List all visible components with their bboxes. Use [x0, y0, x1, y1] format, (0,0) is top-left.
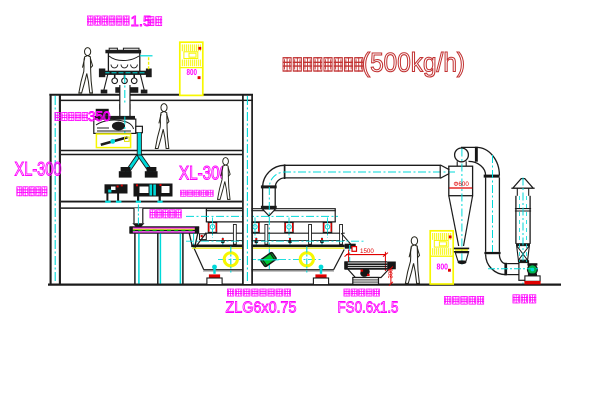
- svg-text:800: 800: [437, 261, 449, 271]
- svg-text:FS0.6x1.5: FS0.6x1.5: [338, 300, 399, 317]
- svg-text:XL-300: XL-300: [15, 160, 62, 181]
- svg-text:XL-300: XL-300: [179, 164, 228, 185]
- svg-text:300: 300: [389, 268, 395, 279]
- svg-text:ZLG6x0.75: ZLG6x0.75: [226, 300, 297, 317]
- svg-text:Φ600: Φ600: [454, 181, 470, 188]
- svg-text:(500kg/h): (500kg/h): [362, 48, 465, 78]
- svg-text:1.5: 1.5: [131, 13, 152, 30]
- svg-text:800: 800: [187, 67, 198, 77]
- svg-text:1500: 1500: [360, 248, 374, 255]
- svg-text:350: 350: [88, 109, 111, 124]
